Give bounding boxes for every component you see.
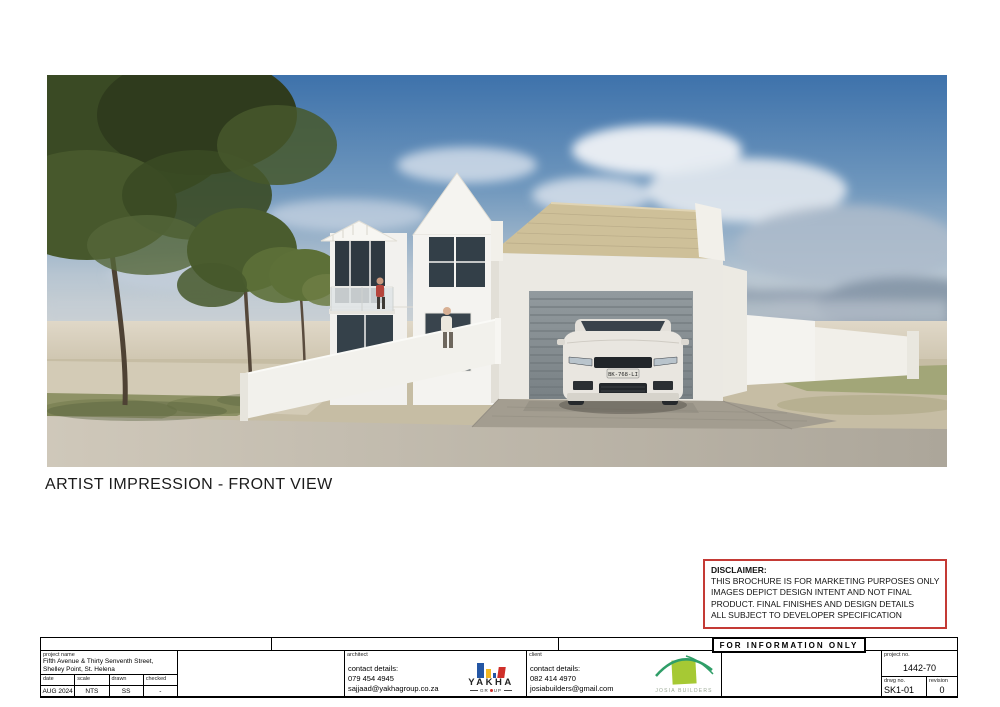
client-cell: client contact details: 082 414 4970 jos… — [527, 651, 722, 696]
client-phone: 082 414 4970 — [530, 674, 613, 684]
drawing-no-value: SK1-01 — [882, 684, 926, 696]
josia-house-icon — [652, 652, 716, 686]
checked-label: checked — [144, 675, 177, 686]
render-scene: BK-768-LI — [47, 75, 947, 467]
architect-phone: 079 454 4945 — [348, 674, 439, 684]
yakha-logo-name: YAKHA — [460, 678, 522, 688]
client-contact: contact details: 082 414 4970 josiabuild… — [530, 664, 613, 694]
artist-impression-image: BK-768-LI — [47, 75, 947, 467]
revision-cell: revision 0 — [927, 677, 957, 696]
architect-contact-label: contact details: — [348, 664, 439, 674]
josia-logo-name: JOSIA BUILDERS — [649, 688, 719, 694]
project-no-cell: project no. 1442-70 — [882, 651, 957, 677]
divider — [271, 638, 272, 650]
revision-value: 0 — [927, 684, 957, 696]
architect-email: sajjaad@yakhagroup.co.za — [348, 684, 439, 694]
meta-grid: date AUG 2024 scale NTS drawn SS checked… — [41, 674, 177, 696]
empty-cell — [178, 651, 345, 696]
divider — [558, 638, 559, 650]
title-block-top-row: FOR INFORMATION ONLY — [41, 638, 957, 651]
title-block: FOR INFORMATION ONLY project name Fifth … — [40, 637, 958, 698]
disclaimer-box: DISCLAIMER: THIS BROCHURE IS FOR MARKETI… — [703, 559, 947, 629]
drawing-no-label: drwg no. — [882, 677, 926, 684]
license-plate: BK-768-LI — [607, 369, 639, 378]
drawn-value: SS — [110, 686, 143, 696]
architect-contact: contact details: 079 454 4945 sajjaad@ya… — [348, 664, 439, 694]
yakha-logo-sub: GRUP — [460, 688, 522, 693]
josia-builders-logo: JOSIA BUILDERS — [649, 652, 719, 694]
checked-value: - — [144, 686, 177, 696]
disclaimer-line: IMAGES DEPICT DESIGN INTENT AND NOT FINA… — [711, 587, 940, 598]
scale-cell: scale NTS — [75, 675, 109, 696]
disclaimer-line: ALL SUBJECT TO DEVELOPER SPECIFICATION — [711, 610, 940, 621]
date-label: date — [41, 675, 74, 686]
disclaimer-line: PRODUCT. FINAL FINISHES AND DESIGN DETAI… — [711, 599, 940, 610]
client-email: josiabuilders@gmail.com — [530, 684, 613, 694]
car: BK-768-LI — [557, 319, 689, 414]
drawing-no-row: drwg no. SK1-01 revision 0 — [882, 677, 957, 696]
balcony — [329, 287, 395, 314]
yakha-sub-right: UP — [494, 688, 502, 693]
drawn-label: drawn — [110, 675, 143, 686]
checked-cell: checked - — [144, 675, 177, 696]
empty-cell — [722, 651, 882, 696]
project-name-value: Fifth Avenue & Thirty Senventh Street, S… — [41, 658, 177, 674]
scale-value: NTS — [75, 686, 108, 696]
project-name-cell: project name Fifth Avenue & Thirty Senve… — [41, 651, 178, 696]
date-cell: date AUG 2024 — [41, 675, 75, 696]
disclaimer-title: DISCLAIMER: — [711, 565, 940, 576]
project-no-value: 1442-70 — [882, 663, 957, 673]
drawing-no-cell: drwg no. SK1-01 — [882, 677, 927, 696]
numbers-cell: project no. 1442-70 drwg no. SK1-01 revi… — [882, 651, 957, 696]
client-contact-label: contact details: — [530, 664, 613, 674]
project-no-label: project no. — [882, 651, 957, 658]
date-value: AUG 2024 — [41, 686, 74, 696]
drawn-cell: drawn SS — [110, 675, 144, 696]
disclaimer-line: THIS BROCHURE IS FOR MARKETING PURPOSES … — [711, 576, 940, 587]
revision-label: revision — [927, 677, 957, 684]
yakha-red-dot-icon — [490, 689, 493, 692]
drawing-caption: ARTIST IMPRESSION - FRONT VIEW — [45, 476, 333, 494]
architect-label: architect — [345, 651, 526, 658]
license-plate-text: BK-768-LI — [608, 372, 638, 378]
yakha-buildings-icon — [460, 662, 522, 678]
architect-cell: architect contact details: 079 454 4945 … — [345, 651, 527, 696]
yakha-sub-left: GR — [480, 688, 489, 693]
scale-label: scale — [75, 675, 108, 686]
yakha-group-logo: YAKHA GRUP — [460, 662, 522, 693]
project-name-label: project name — [41, 651, 177, 658]
